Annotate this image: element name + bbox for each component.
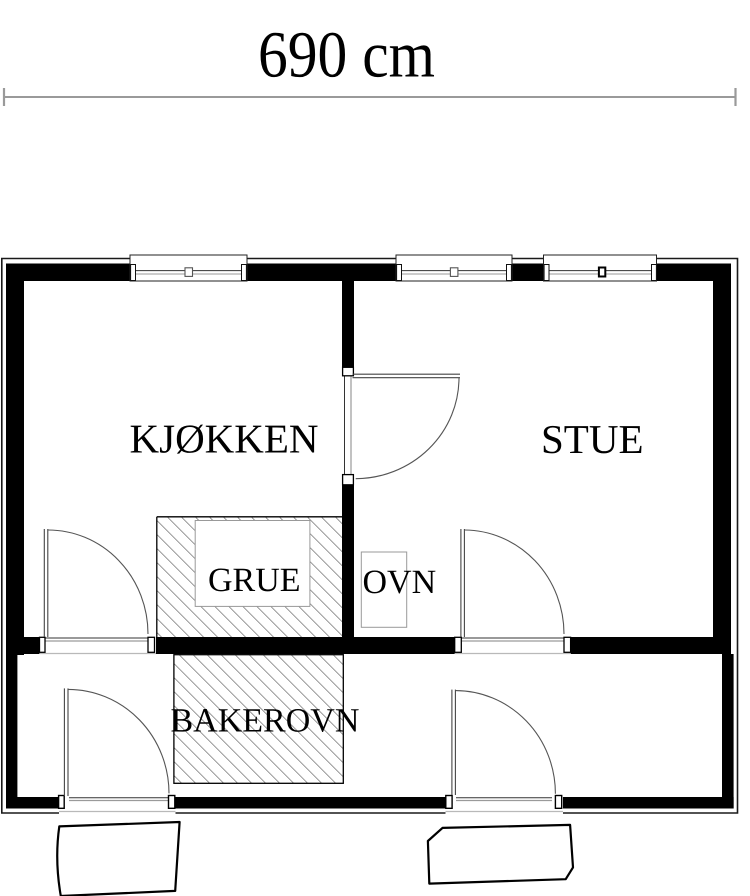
svg-text:STUE: STUE <box>541 416 644 462</box>
svg-text:GRUE: GRUE <box>208 562 301 599</box>
svg-text:BAKEROVN: BAKEROVN <box>171 703 360 740</box>
svg-text:OVN: OVN <box>363 564 437 601</box>
svg-text:KJØKKEN: KJØKKEN <box>130 416 319 462</box>
svg-text:690 cm: 690 cm <box>258 19 435 92</box>
